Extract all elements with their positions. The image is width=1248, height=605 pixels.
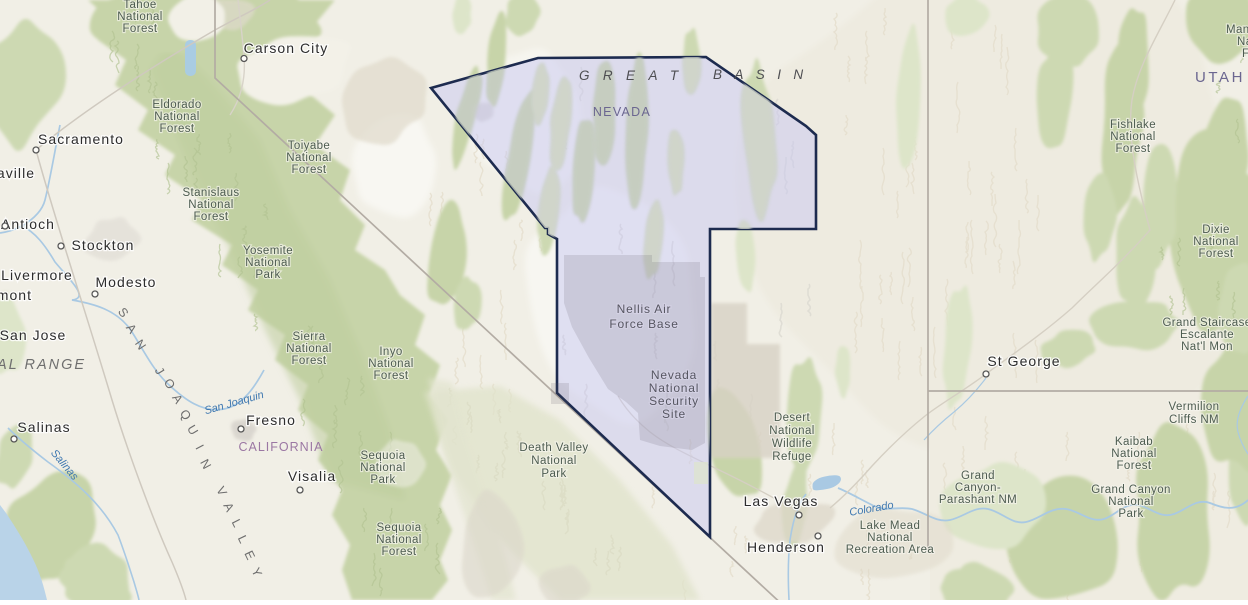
svg-text:National: National	[1193, 236, 1238, 248]
svg-text:Nevada: Nevada	[651, 368, 697, 382]
svg-text:Antioch: Antioch	[1, 216, 55, 232]
svg-text:Eldorado: Eldorado	[152, 99, 201, 111]
svg-text:National: National	[245, 257, 290, 269]
svg-text:Park: Park	[541, 468, 566, 480]
svg-text:Sacramento: Sacramento	[38, 131, 124, 147]
svg-text:emont: emont	[0, 287, 32, 303]
svg-text:Dixie: Dixie	[1202, 224, 1230, 236]
svg-text:Forest: Forest	[160, 123, 195, 135]
svg-text:CALIFORNIA: CALIFORNIA	[238, 440, 323, 454]
svg-text:Nati: Nati	[1237, 36, 1248, 48]
svg-text:National: National	[867, 532, 912, 544]
svg-text:Refuge: Refuge	[772, 451, 811, 463]
svg-text:Grand Staircase: Grand Staircase	[1162, 317, 1248, 329]
svg-text:Forest: Forest	[292, 164, 327, 176]
svg-text:National: National	[376, 534, 421, 546]
svg-text:Stanislaus: Stanislaus	[182, 187, 239, 199]
svg-text:Forest: Forest	[194, 211, 229, 223]
svg-text:Mant: Mant	[1226, 24, 1248, 36]
svg-text:Salinas: Salinas	[17, 419, 70, 435]
svg-text:Escalante: Escalante	[1180, 329, 1234, 341]
svg-text:Desert: Desert	[774, 412, 811, 424]
svg-text:National: National	[769, 425, 814, 437]
svg-text:Fishlake: Fishlake	[1110, 119, 1156, 131]
svg-text:Death Valley: Death Valley	[519, 442, 588, 454]
svg-text:Forest: Forest	[1199, 248, 1234, 260]
svg-text:Inyo: Inyo	[379, 346, 402, 358]
svg-text:Parashant NM: Parashant NM	[939, 494, 1017, 506]
svg-text:Nat'l Mon: Nat'l Mon	[1181, 341, 1233, 353]
svg-text:Cliffs NM: Cliffs NM	[1169, 414, 1219, 426]
svg-text:UTAH: UTAH	[1195, 69, 1245, 86]
svg-text:National: National	[286, 152, 331, 164]
svg-text:Lake Mead: Lake Mead	[860, 520, 921, 532]
svg-text:Carson City: Carson City	[244, 40, 329, 56]
svg-text:Park: Park	[370, 474, 395, 486]
svg-text:Tahoe: Tahoe	[123, 0, 156, 11]
svg-text:Livermore: Livermore	[1, 267, 73, 283]
svg-text:National: National	[1108, 496, 1153, 508]
svg-text:Grand Canyon: Grand Canyon	[1091, 484, 1171, 496]
svg-text:National: National	[188, 199, 233, 211]
svg-text:BASIN: BASIN	[713, 67, 816, 82]
svg-text:Nellis Air: Nellis Air	[617, 302, 672, 316]
svg-text:Wildlife: Wildlife	[772, 438, 812, 450]
svg-text:Force Base: Force Base	[609, 317, 678, 331]
svg-text:Forest: Forest	[123, 23, 158, 35]
svg-text:St George: St George	[987, 353, 1060, 369]
svg-text:Forest: Forest	[374, 370, 409, 382]
svg-text:Toiyabe: Toiyabe	[288, 140, 330, 152]
svg-text:Sequoia: Sequoia	[360, 450, 405, 462]
svg-text:Yosemite: Yosemite	[243, 245, 293, 257]
svg-text:National: National	[368, 358, 413, 370]
svg-text:Canyon-: Canyon-	[955, 482, 1001, 494]
svg-text:National: National	[649, 381, 699, 395]
svg-text:Forest: Forest	[1116, 143, 1151, 155]
svg-text:National: National	[154, 111, 199, 123]
svg-text:National: National	[1110, 131, 1155, 143]
svg-text:Forest: Forest	[382, 546, 417, 558]
svg-text:GREAT: GREAT	[579, 68, 692, 83]
svg-text:Recreation Area: Recreation Area	[846, 544, 935, 556]
svg-text:Sequoia: Sequoia	[376, 522, 421, 534]
svg-text:National: National	[531, 455, 576, 467]
svg-text:San Jose: San Jose	[0, 327, 66, 343]
svg-text:Site: Site	[662, 407, 686, 421]
svg-text:Sierra: Sierra	[292, 331, 325, 343]
svg-text:Park: Park	[255, 269, 280, 281]
svg-text:Park: Park	[1118, 508, 1143, 520]
svg-text:Security: Security	[649, 394, 699, 408]
svg-text:For: For	[1242, 48, 1248, 60]
svg-text:Henderson: Henderson	[747, 539, 825, 555]
svg-text:Kaibab: Kaibab	[1115, 436, 1153, 448]
svg-text:National: National	[1111, 448, 1156, 460]
svg-text:National: National	[286, 343, 331, 355]
svg-text:National: National	[360, 462, 405, 474]
svg-text:National: National	[117, 11, 162, 23]
svg-text:Forest: Forest	[1117, 460, 1152, 472]
svg-text:Visalia: Visalia	[288, 468, 336, 484]
svg-text:AL RANGE: AL RANGE	[0, 357, 86, 373]
svg-text:aville: aville	[0, 165, 35, 181]
svg-text:Las Vegas: Las Vegas	[744, 493, 819, 509]
svg-text:Vermilion: Vermilion	[1169, 401, 1220, 413]
svg-text:Grand: Grand	[961, 470, 995, 482]
svg-text:Forest: Forest	[292, 355, 327, 367]
svg-text:Fresno: Fresno	[246, 412, 296, 428]
svg-text:Stockton: Stockton	[72, 237, 135, 253]
svg-text:Modesto: Modesto	[95, 274, 156, 290]
svg-text:NEVADA: NEVADA	[593, 105, 651, 119]
